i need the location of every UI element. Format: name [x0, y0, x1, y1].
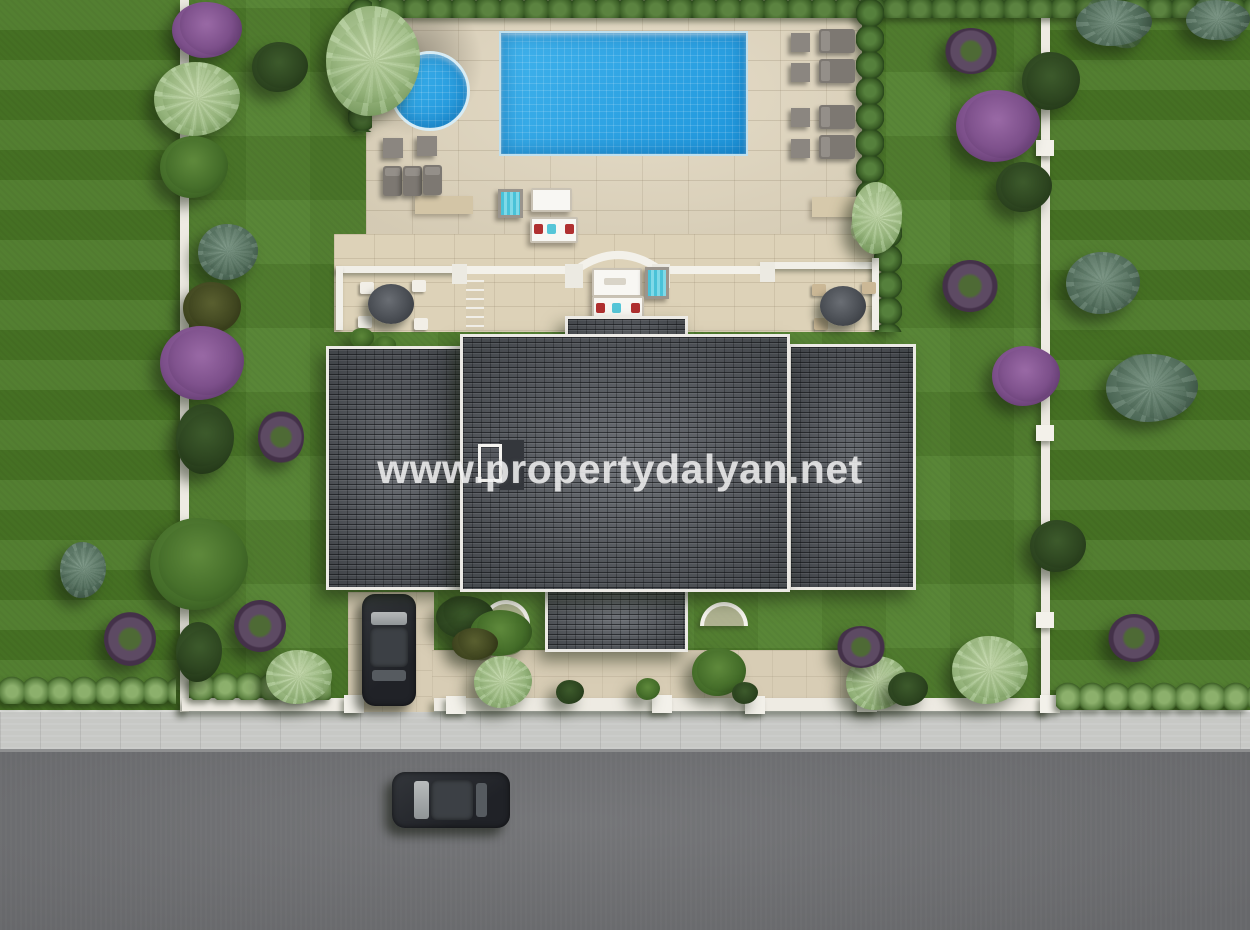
- terrace-rail-right-end: [872, 258, 879, 330]
- parasol: [368, 284, 414, 324]
- car-roof: [370, 627, 408, 667]
- car-roof: [431, 780, 473, 820]
- teal-cushion: [612, 303, 621, 313]
- garden-bush: [452, 628, 498, 660]
- teal-cushion: [547, 224, 556, 234]
- wreath-shrub: [258, 410, 304, 464]
- red-cushion: [534, 224, 543, 234]
- pool-cabinet: [531, 188, 572, 212]
- wall-post: [344, 695, 364, 713]
- sun-lounger: [819, 105, 855, 129]
- terrace-table: [592, 268, 642, 297]
- deck-step: [415, 196, 473, 214]
- asphalt-road: [0, 750, 1250, 930]
- side-table: [791, 63, 810, 82]
- patio-chair: [414, 318, 428, 330]
- sun-lounger: [819, 59, 855, 83]
- red-cushion: [631, 303, 640, 313]
- side-table: [791, 108, 810, 127]
- sun-lounger: [819, 135, 855, 159]
- wreath-shrub: [944, 28, 998, 74]
- roof-bottom-dormer: [545, 586, 688, 652]
- aerial-property-render: www.propertydalyan.net: [0, 0, 1250, 930]
- parasol: [820, 286, 866, 326]
- tray: [604, 278, 626, 285]
- wall-post: [652, 695, 672, 713]
- wreath-shrub: [836, 626, 886, 668]
- car-windshield: [371, 612, 407, 625]
- sun-lounger: [403, 166, 422, 196]
- wreath-shrub: [234, 600, 286, 652]
- teal-tree: [1186, 0, 1250, 40]
- side-table: [383, 138, 403, 158]
- terrace-rail-left-end: [336, 266, 343, 330]
- teal-tree: [1076, 0, 1152, 46]
- sun-lounger: [383, 166, 402, 196]
- towel-rack: [498, 189, 523, 218]
- car-windshield: [414, 781, 429, 819]
- wall-post: [1036, 425, 1054, 441]
- red-cushion: [565, 224, 574, 234]
- side-table: [791, 139, 810, 158]
- side-table: [791, 33, 810, 52]
- patio-chair: [862, 282, 876, 294]
- wall-post: [1036, 612, 1054, 628]
- watermark: www.propertydalyan.net: [377, 446, 863, 493]
- side-table: [417, 136, 437, 156]
- car-rear-window: [372, 670, 406, 681]
- left-neighbor-front-hedge: [0, 676, 176, 706]
- sun-lounger: [819, 29, 855, 53]
- towel-rack: [645, 267, 669, 299]
- sidewalk: [0, 710, 1250, 752]
- driveway-car: [362, 594, 416, 706]
- sun-lounger: [423, 165, 442, 195]
- car-rear-window: [476, 783, 487, 817]
- wreath-shrub: [1108, 614, 1160, 662]
- road-car: [392, 772, 510, 828]
- wreath-shrub: [104, 612, 156, 666]
- patio-chair: [358, 316, 372, 328]
- deck-right-hedge: [856, 0, 886, 196]
- wall-post: [1036, 140, 1054, 156]
- main-pool: [499, 31, 748, 156]
- red-cushion: [596, 303, 605, 313]
- wall-post: [446, 696, 466, 714]
- right-neighbor-front-hedge: [1056, 682, 1250, 710]
- patio-chair: [412, 280, 426, 292]
- wreath-shrub: [942, 260, 998, 312]
